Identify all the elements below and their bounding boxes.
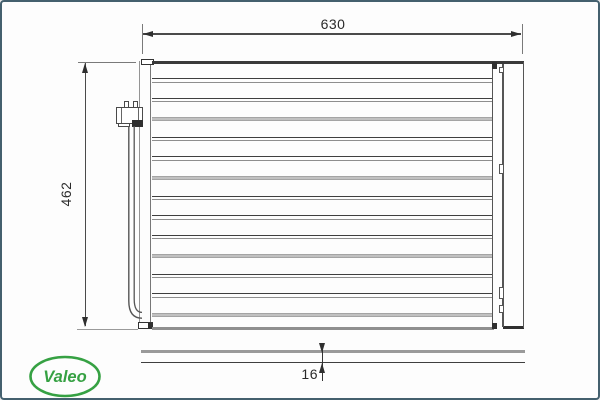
valeo-logo-text: Valeo [43, 368, 86, 386]
pipe-outer-line [129, 126, 142, 318]
technical-drawing-page: 630 462 16 Valeo [0, 0, 600, 400]
pipe-inner-line [134, 126, 142, 312]
valeo-logo: Valeo [28, 355, 102, 398]
profile-top-line [141, 350, 525, 352]
profile-bottom-line [141, 362, 525, 363]
dimension-arrow-down-icon [319, 343, 325, 353]
pipe-drawing [2, 2, 600, 400]
dimension-arrow-up-icon [319, 363, 325, 373]
dimension-depth-label: 16 [294, 366, 318, 382]
